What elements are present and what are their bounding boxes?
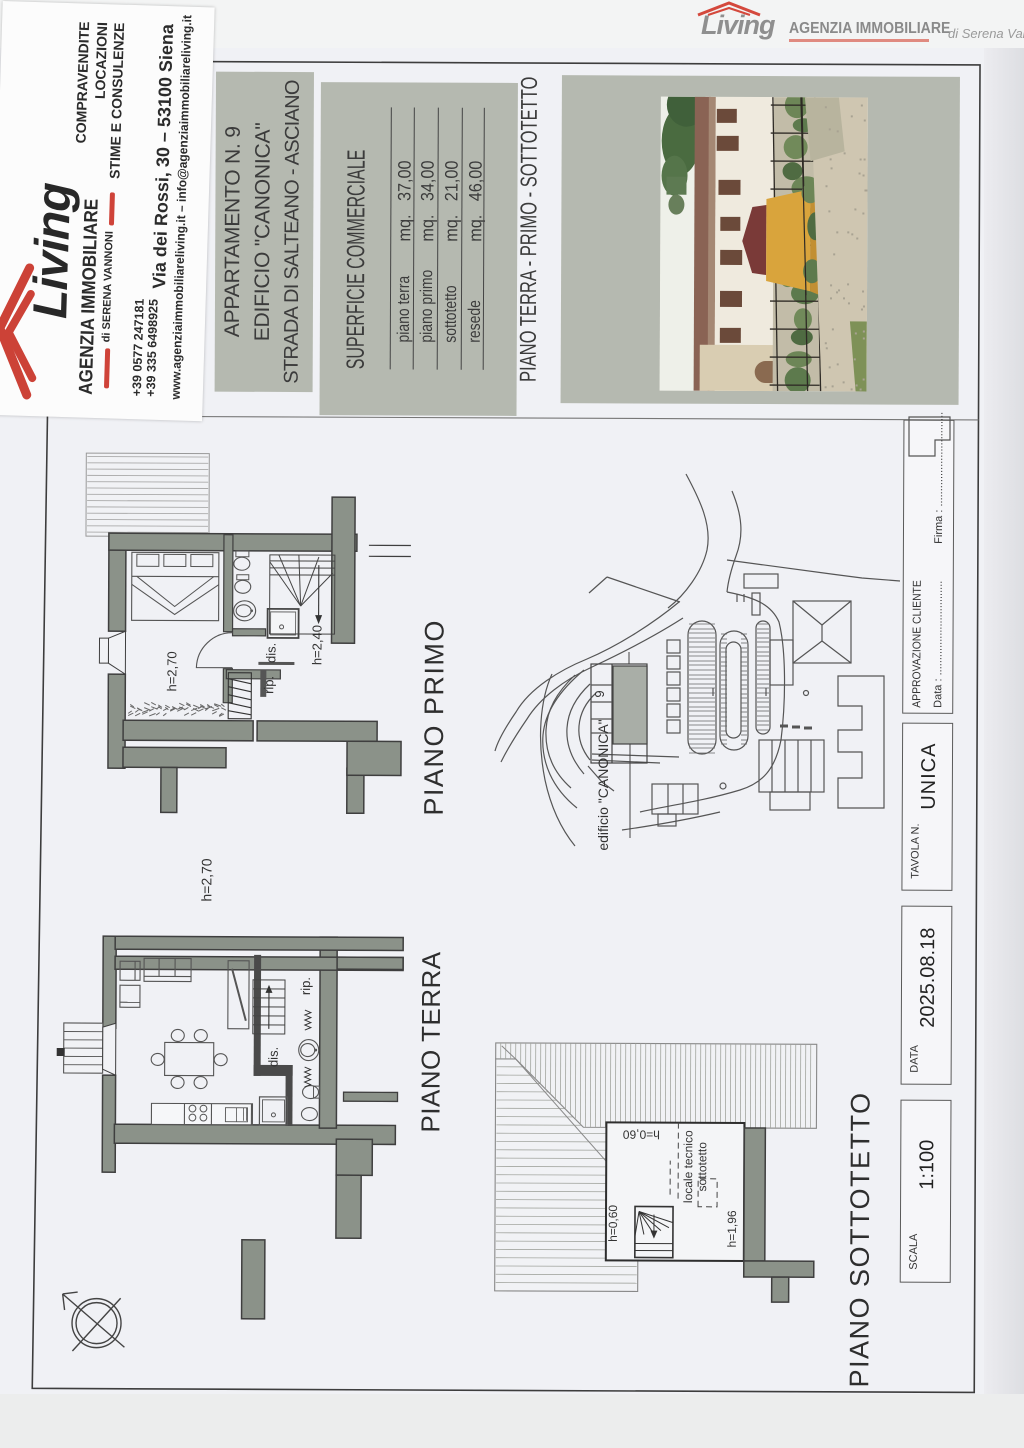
svg-text:9: 9 [592,690,607,697]
svg-text:edificio "CANONICA": edificio "CANONICA" [595,719,611,850]
